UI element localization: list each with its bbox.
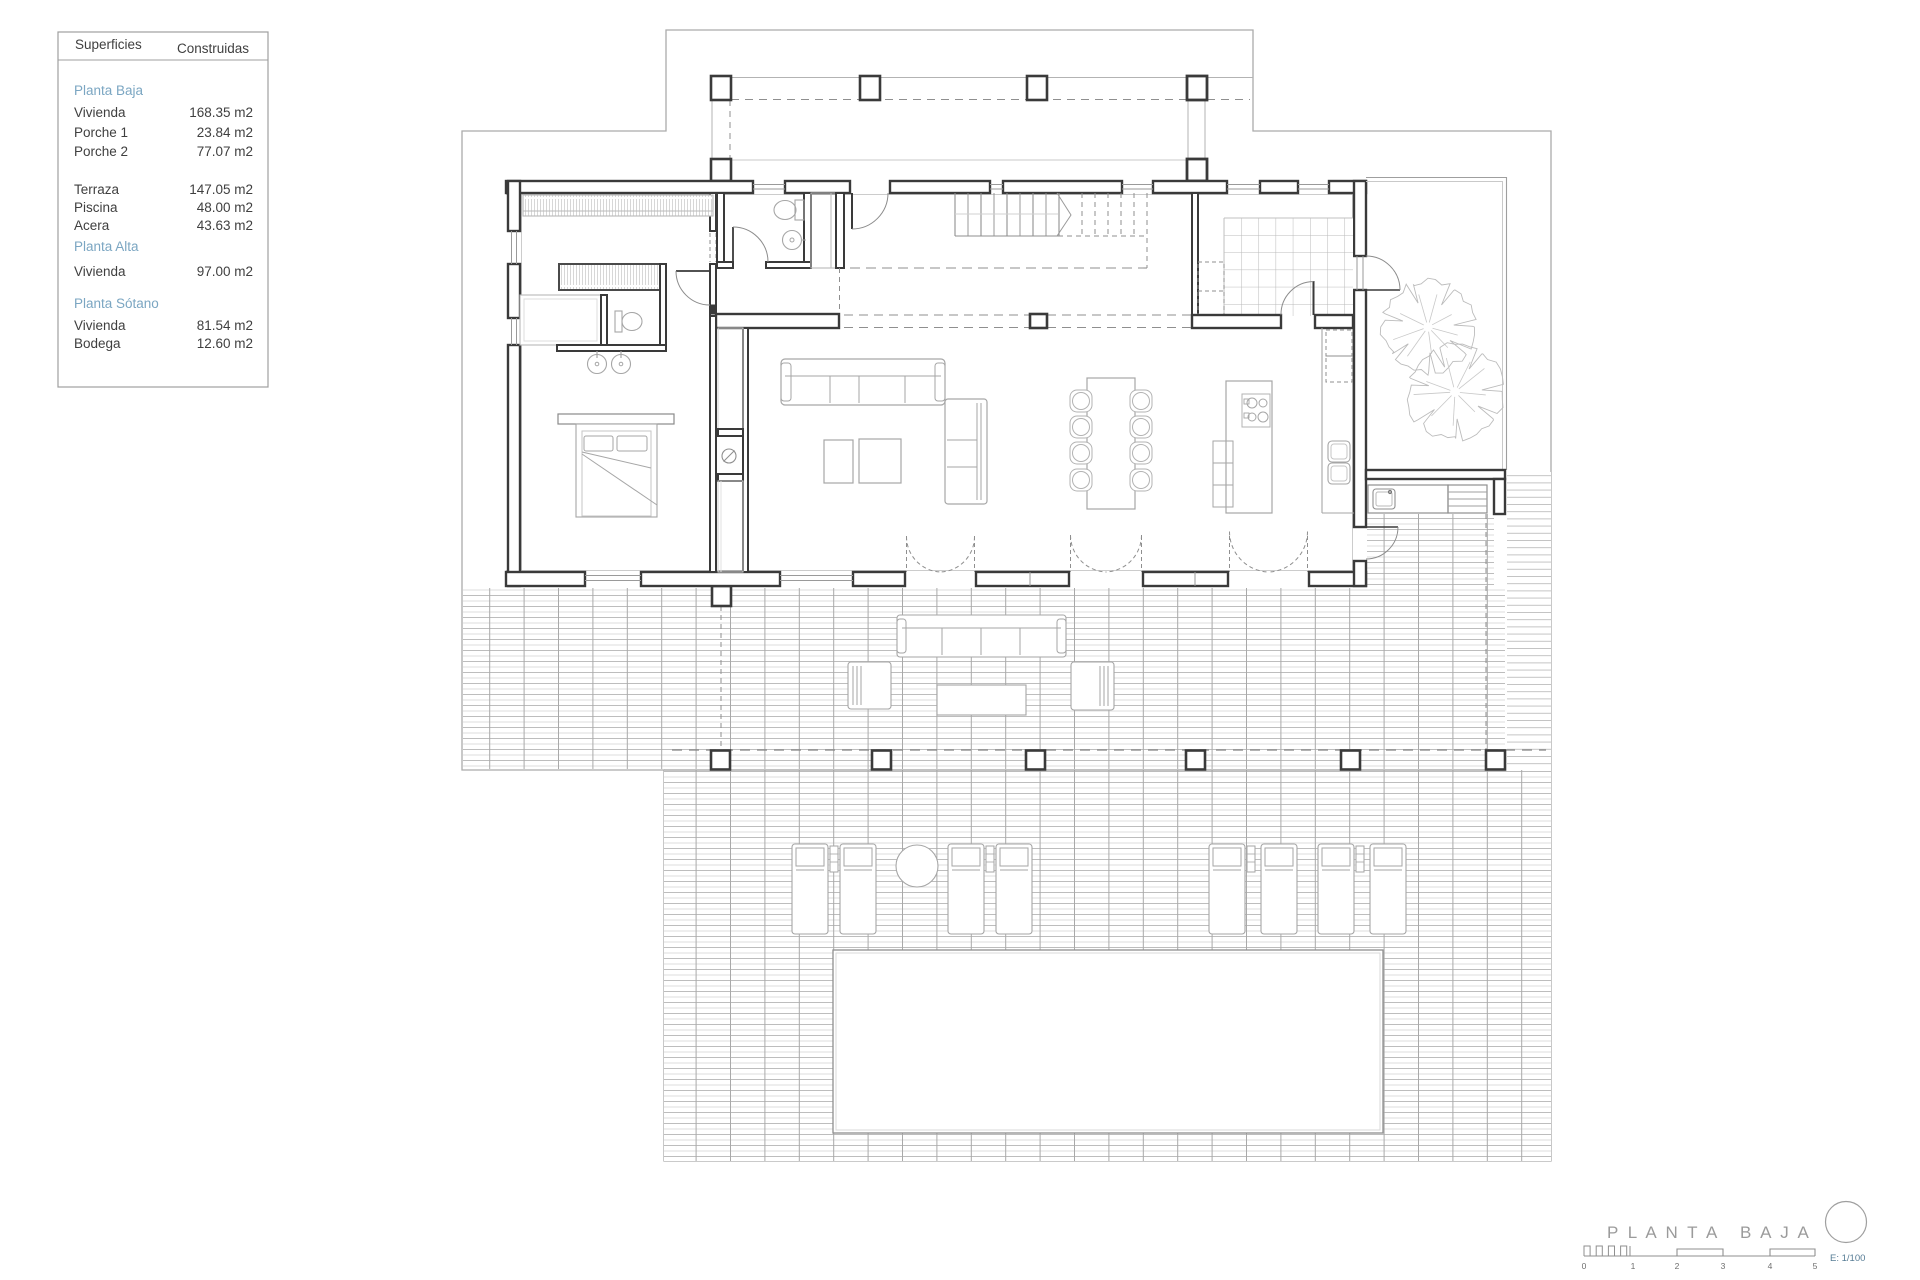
svg-text:B A J A: B A J A — [1740, 1223, 1811, 1242]
svg-text:E: 1/100: E: 1/100 — [1830, 1253, 1865, 1264]
svg-text:Superficies: Superficies — [75, 37, 142, 52]
svg-text:Porche 2: Porche 2 — [74, 144, 128, 159]
svg-text:Porche 1: Porche 1 — [74, 125, 128, 140]
svg-text:Vivienda: Vivienda — [74, 318, 126, 333]
svg-text:Planta Baja: Planta Baja — [74, 83, 144, 98]
svg-text:P L A N T A: P L A N T A — [1607, 1223, 1720, 1242]
svg-text:2: 2 — [1675, 1261, 1680, 1271]
svg-text:168.35 m2: 168.35 m2 — [189, 105, 253, 120]
svg-text:12.60 m2: 12.60 m2 — [197, 336, 253, 351]
svg-text:Planta Alta: Planta Alta — [74, 239, 139, 254]
svg-text:4: 4 — [1768, 1261, 1773, 1271]
svg-text:97.00 m2: 97.00 m2 — [197, 264, 253, 279]
svg-text:Construidas: Construidas — [177, 41, 249, 56]
svg-text:Planta Sótano: Planta Sótano — [74, 296, 159, 311]
svg-text:Terraza: Terraza — [74, 182, 120, 197]
svg-text:3: 3 — [1721, 1261, 1726, 1271]
svg-text:23.84 m2: 23.84 m2 — [197, 125, 253, 140]
svg-text:43.63 m2: 43.63 m2 — [197, 218, 253, 233]
svg-text:81.54 m2: 81.54 m2 — [197, 318, 253, 333]
svg-text:48.00 m2: 48.00 m2 — [197, 200, 253, 215]
svg-text:5: 5 — [1813, 1261, 1818, 1271]
svg-text:Vivienda: Vivienda — [74, 105, 126, 120]
svg-text:Vivienda: Vivienda — [74, 264, 126, 279]
svg-text:147.05 m2: 147.05 m2 — [189, 182, 253, 197]
svg-text:0: 0 — [1582, 1261, 1587, 1271]
svg-text:Piscina: Piscina — [74, 200, 118, 215]
svg-text:1: 1 — [1631, 1261, 1636, 1271]
svg-text:77.07 m2: 77.07 m2 — [197, 144, 253, 159]
svg-text:Acera: Acera — [74, 218, 110, 233]
svg-text:Bodega: Bodega — [74, 336, 121, 351]
